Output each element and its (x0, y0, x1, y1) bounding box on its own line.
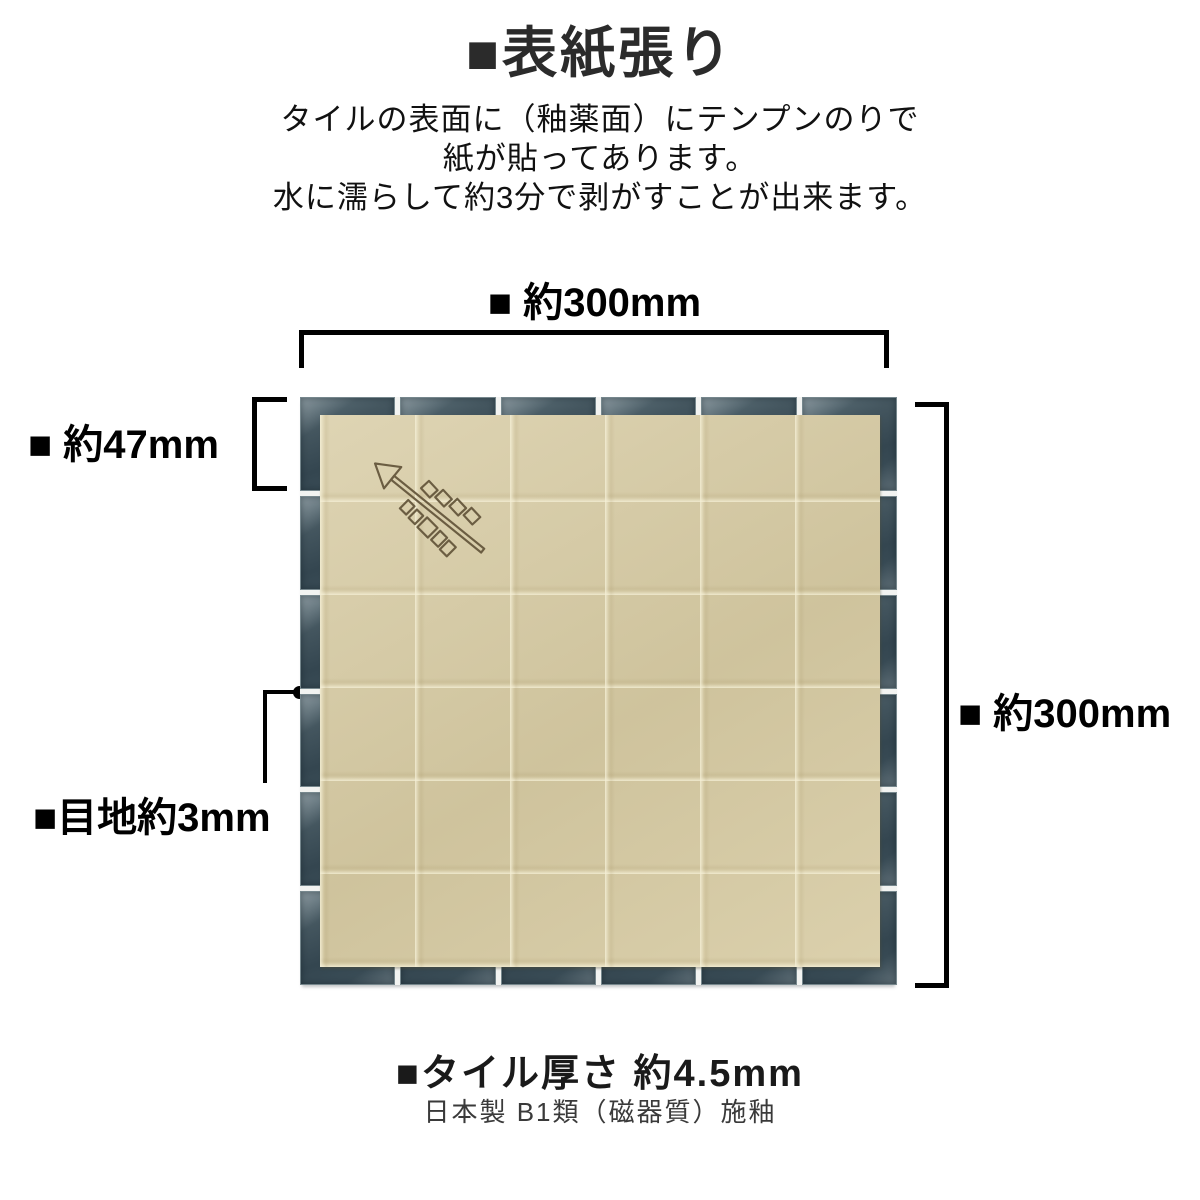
product-description: タイルの表面に（釉薬面）にテンプンのりで 紙が貼ってあります。 水に濡らして約3… (0, 100, 1200, 217)
joint-pointer-line (263, 690, 267, 783)
description-line: 紙が貼ってあります。 (0, 139, 1200, 178)
origin-spec-label: 日本製 B1類（磁器質）施釉 (0, 1092, 1200, 1129)
tile-sheet (300, 397, 897, 985)
dimension-label-width-300mm: ■ 約300mm (300, 270, 889, 328)
description-line: タイルの表面に（釉薬面）にテンプンのりで (0, 100, 1200, 139)
joint-pointer-line (263, 690, 301, 694)
page-title: ■表紙張り (0, 8, 1200, 88)
dimension-bracket-right (915, 402, 949, 988)
direction-arrow-stamp-icon (356, 453, 504, 563)
dimension-bracket-left (252, 397, 287, 491)
dimension-label-joint-3mm: ■目地約3mm (33, 785, 271, 843)
dimension-label-tile-47mm: ■ 約47mm (28, 412, 219, 470)
description-line: 水に濡らして約3分で剥がすことが出来ます。 (0, 178, 1200, 217)
dimension-label-height-300mm: ■ 約300mm (958, 681, 1171, 739)
dimension-bracket-top (299, 330, 889, 368)
face-paper-overlay (320, 415, 880, 967)
tile-thickness-label: ■タイル厚さ 約4.5mm (0, 1042, 1200, 1097)
